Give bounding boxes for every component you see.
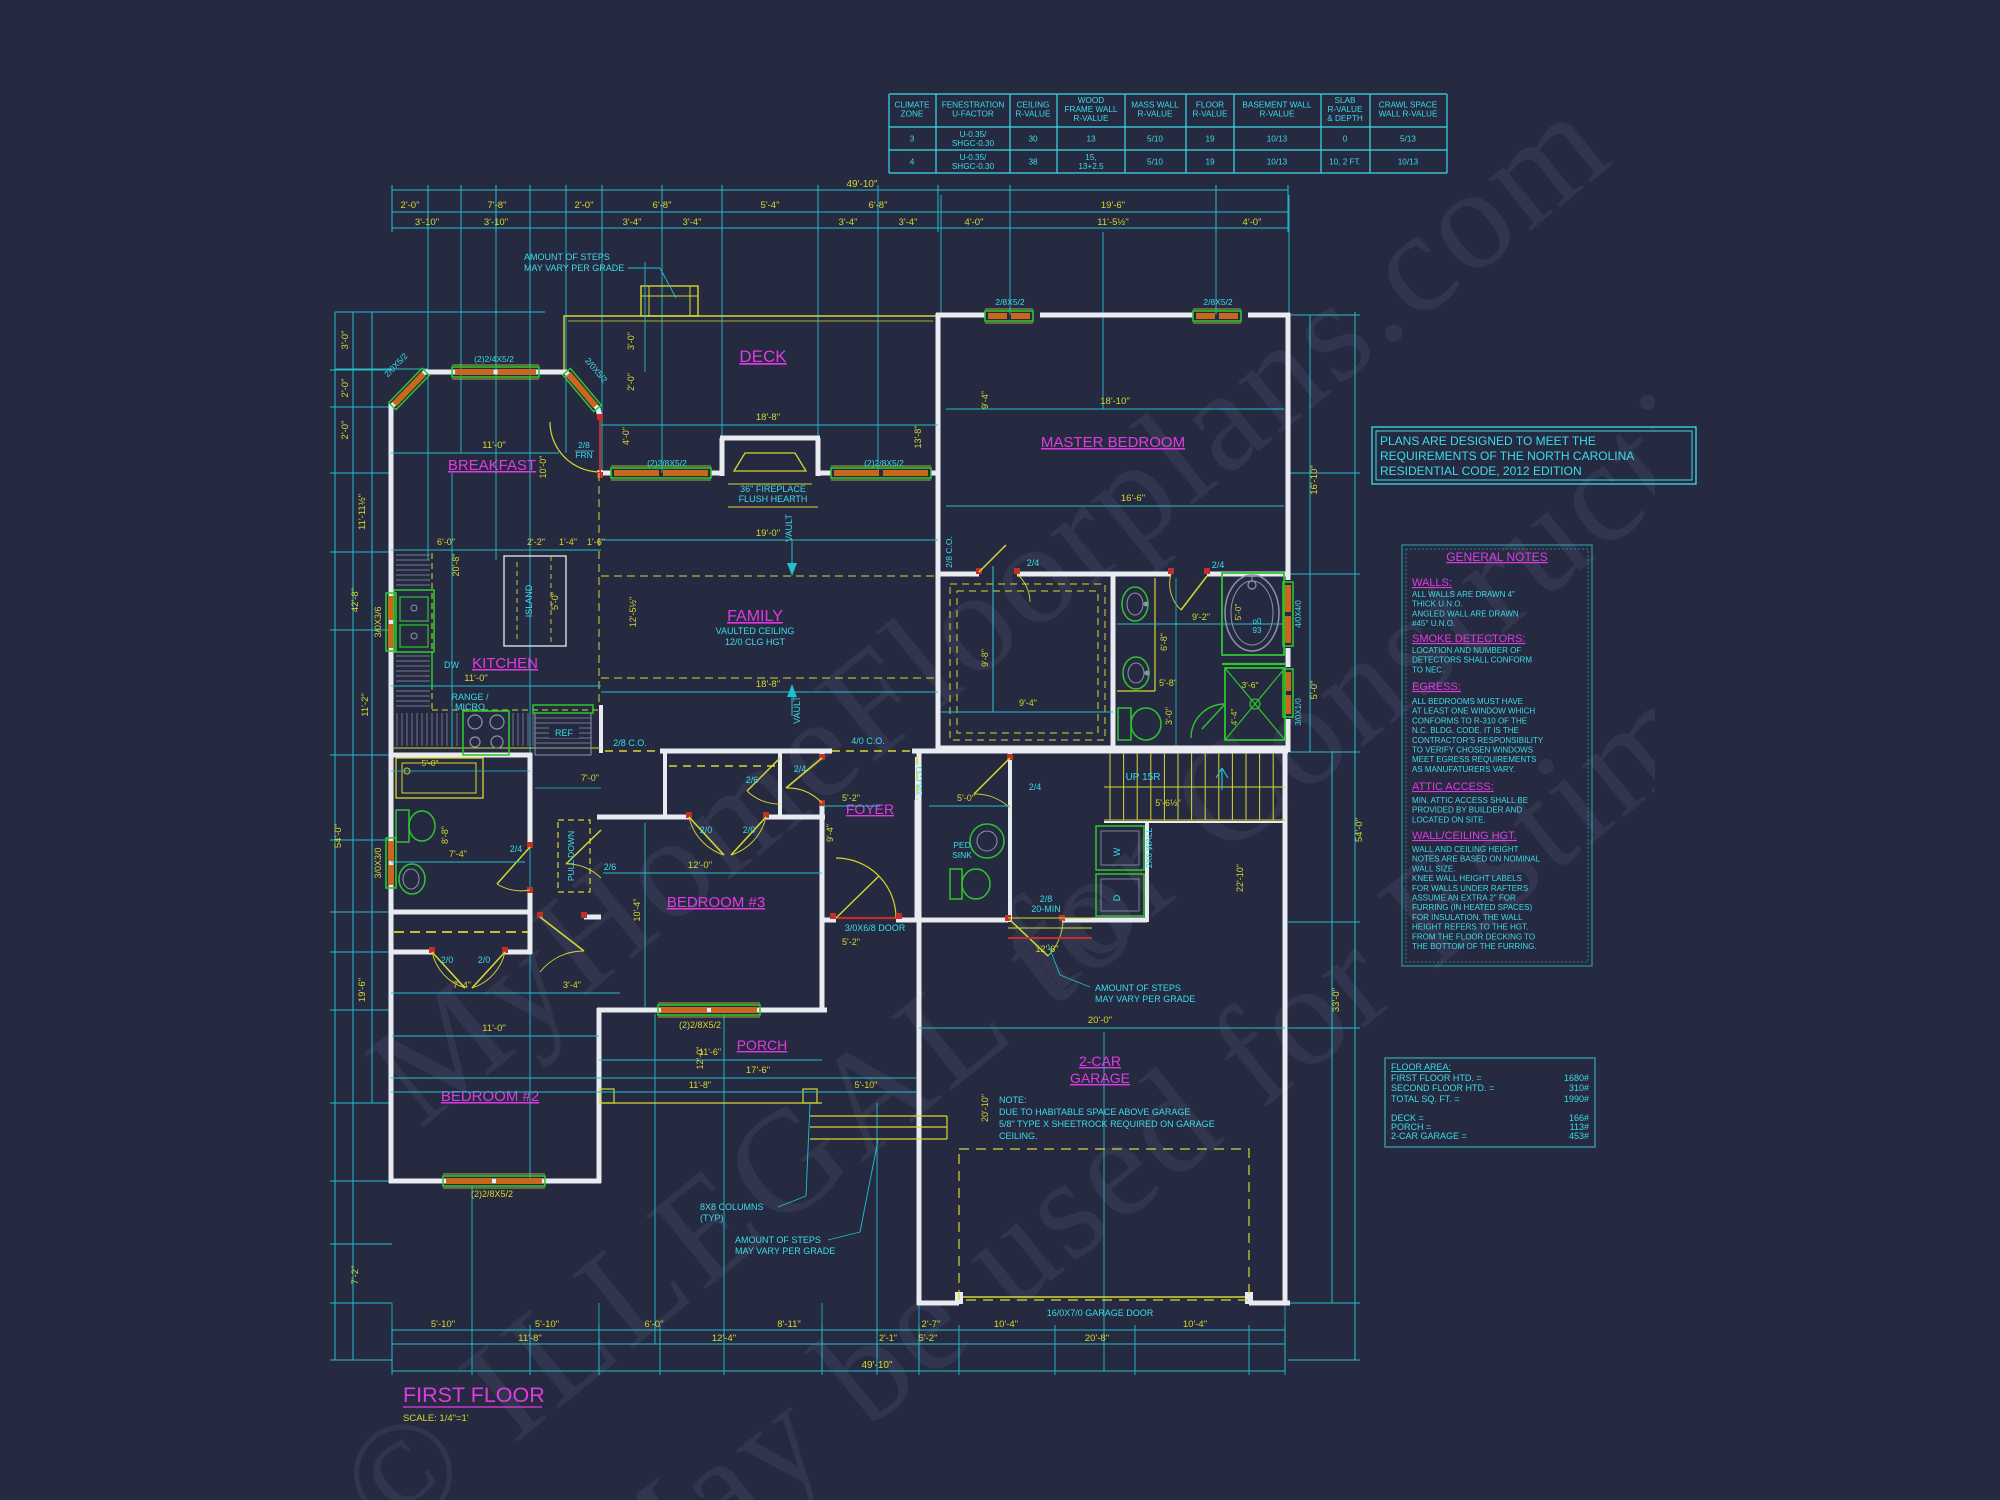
svg-text:8'-11": 8'-11": [777, 1319, 801, 1330]
svg-text:3/0X3/0: 3/0X3/0: [373, 847, 383, 878]
svg-text:W: W: [1112, 847, 1122, 856]
svg-text:11'-0": 11'-0": [482, 440, 506, 451]
svg-text:R-VALUE: R-VALUE: [1138, 110, 1173, 119]
svg-text:13'-8": 13'-8": [913, 426, 923, 449]
svg-text:MASTER BEDROOM: MASTER BEDROOM: [1041, 434, 1185, 451]
svg-text:SCALE: 1/4"=1': SCALE: 1/4"=1': [403, 1413, 469, 1424]
svg-text:FIRST FLOOR HTD. =: FIRST FLOOR HTD. =: [1391, 1073, 1482, 1083]
svg-text:SLAB: SLAB: [1335, 96, 1356, 105]
svg-text:10'-4": 10'-4": [1183, 1319, 1207, 1330]
svg-text:2'-0": 2'-0": [575, 200, 594, 211]
svg-text:KNEE WALL HEIGHT LABELS: KNEE WALL HEIGHT LABELS: [1412, 874, 1522, 883]
svg-text:9'-4": 9'-4": [825, 824, 835, 842]
svg-text:11'-5½": 11'-5½": [1097, 217, 1128, 228]
svg-text:11'-8": 11'-8": [689, 1080, 711, 1090]
svg-text:CONTRACTOR'S RESPONSIBILITY: CONTRACTOR'S RESPONSIBILITY: [1412, 736, 1544, 745]
svg-text:ISLAND: ISLAND: [524, 584, 534, 617]
svg-text:20'-8": 20'-8": [1085, 1333, 1109, 1344]
svg-text:FIRST FLOOR: FIRST FLOOR: [403, 1383, 545, 1407]
svg-text:20'-10": 20'-10": [980, 1094, 990, 1122]
svg-text:RANGE /: RANGE /: [451, 692, 489, 702]
svg-text:U-0.35/: U-0.35/: [960, 130, 988, 139]
svg-text:NOTE:: NOTE:: [999, 1095, 1027, 1105]
svg-text:12'-5½": 12'-5½": [628, 597, 638, 627]
svg-text:49'-10": 49'-10": [846, 179, 877, 190]
svg-text:FLUSH HEARTH: FLUSH HEARTH: [739, 494, 808, 504]
svg-text:7'-8": 7'-8": [488, 200, 507, 211]
svg-text:PULL DOWN: PULL DOWN: [566, 831, 576, 881]
svg-text:R-VALUE: R-VALUE: [1328, 105, 1363, 114]
svg-text:6'-8": 6'-8": [653, 200, 672, 211]
svg-text:MAY VARY PER GRADE: MAY VARY PER GRADE: [1095, 994, 1195, 1004]
svg-text:(2)2/8X5/2: (2)2/8X5/2: [471, 1189, 513, 1199]
svg-text:5/8" TYPE X SHEETROCK REQUIRED: 5/8" TYPE X SHEETROCK REQUIRED ON GARAGE: [999, 1119, 1215, 1129]
svg-text:6'-8": 6'-8": [1159, 633, 1169, 651]
svg-text:10'-4": 10'-4": [994, 1319, 1018, 1330]
svg-text:FOR INSULATION. THE WALL: FOR INSULATION. THE WALL: [1412, 913, 1523, 922]
svg-text:12'-4": 12'-4": [712, 1333, 736, 1344]
svg-text:33'-0": 33'-0": [1331, 988, 1342, 1012]
svg-text:2/4: 2/4: [510, 844, 523, 854]
svg-text:16'-6": 16'-6": [1121, 493, 1145, 504]
svg-text:SINK: SINK: [952, 850, 972, 860]
svg-text:3'-4": 3'-4": [563, 980, 581, 990]
svg-text:AMOUNT OF STEPS: AMOUNT OF STEPS: [1095, 983, 1181, 993]
svg-text:5'-0": 5'-0": [422, 758, 439, 768]
svg-text:4'-0": 4'-0": [621, 427, 631, 445]
svg-text:2/8 C.O.: 2/8 C.O.: [613, 738, 647, 748]
svg-text:SHGC-0.30: SHGC-0.30: [952, 162, 995, 171]
svg-text:1990#: 1990#: [1564, 1094, 1589, 1104]
svg-text:AS MANUFATURERS VARY.: AS MANUFATURERS VARY.: [1412, 765, 1515, 774]
svg-text:NOTES ARE BASED ON NOMINAL: NOTES ARE BASED ON NOMINAL: [1412, 855, 1541, 864]
svg-text:2'-2": 2'-2": [527, 537, 545, 547]
svg-text:ANGLED WALL ARE DRAWN: ANGLED WALL ARE DRAWN: [1412, 609, 1519, 618]
svg-text:5/10: 5/10: [1147, 135, 1163, 144]
svg-text:2'-0": 2'-0": [401, 200, 420, 211]
svg-text:ZONE: ZONE: [901, 110, 924, 119]
svg-text:THE BOTTOM OF THE FURRING.: THE BOTTOM OF THE FURRING.: [1412, 942, 1537, 951]
svg-text:2/4: 2/4: [1027, 558, 1040, 568]
svg-text:#45° U.N.O.: #45° U.N.O.: [1412, 619, 1455, 628]
svg-text:2/4: 2/4: [794, 764, 807, 774]
svg-text:FLOOR AREA:: FLOOR AREA:: [1391, 1062, 1451, 1072]
svg-text:3/0X3/6: 3/0X3/6: [373, 606, 383, 637]
svg-text:2/8: 2/8: [1040, 894, 1053, 904]
svg-text:TO VERIFY CHOSEN WINDOWS: TO VERIFY CHOSEN WINDOWS: [1412, 746, 1533, 755]
svg-text:(2)2/8X5/2: (2)2/8X5/2: [679, 1020, 721, 1030]
svg-text:GENERAL NOTES: GENERAL NOTES: [1446, 550, 1548, 564]
svg-text:VAULT: VAULT: [792, 696, 802, 724]
svg-text:(2)2/8X5/2: (2)2/8X5/2: [647, 458, 687, 468]
svg-text:SMOKE DETECTORS:: SMOKE DETECTORS:: [1412, 633, 1525, 645]
svg-text:9'-2": 9'-2": [1192, 612, 1210, 622]
svg-text:11'-8": 11'-8": [518, 1333, 542, 1344]
svg-text:2/6: 2/6: [604, 862, 617, 872]
svg-text:FLOOR: FLOOR: [1196, 101, 1224, 110]
svg-text:7'-0": 7'-0": [581, 773, 599, 783]
svg-text:19'-0": 19'-0": [756, 528, 780, 539]
svg-text:GARAGE: GARAGE: [1070, 1070, 1130, 1086]
svg-text:3'-0": 3'-0": [340, 331, 351, 350]
svg-text:10, 2 FT.: 10, 2 FT.: [1329, 158, 1361, 167]
svg-text:PED: PED: [953, 840, 970, 850]
svg-text:PLANS ARE DESIGNED TO MEET THE: PLANS ARE DESIGNED TO MEET THE: [1380, 434, 1596, 448]
svg-text:7'-4": 7'-4": [453, 980, 471, 990]
svg-text:MIN. ATTIC ACCESS SHALL BE: MIN. ATTIC ACCESS SHALL BE: [1412, 796, 1528, 805]
svg-text:(2)2/4X5/2: (2)2/4X5/2: [474, 354, 514, 364]
svg-text:6'-0": 6'-0": [645, 1319, 664, 1330]
svg-text:3'-4": 3'-4": [623, 217, 642, 228]
svg-text:& DEPTH: & DEPTH: [1327, 114, 1363, 123]
svg-text:FOYER: FOYER: [846, 801, 894, 817]
svg-text:12'-6": 12'-6": [1036, 944, 1059, 954]
svg-text:1'-4": 1'-4": [559, 537, 577, 547]
svg-text:0: 0: [1343, 135, 1348, 144]
svg-text:17'-6": 17'-6": [746, 1065, 770, 1076]
svg-text:5'-2": 5'-2": [919, 1333, 938, 1344]
svg-text:FROM THE FLOOR DECKING TO: FROM THE FLOOR DECKING TO: [1412, 932, 1535, 941]
svg-text:2/8X5/2: 2/8X5/2: [1203, 297, 1233, 307]
svg-text:3'-4": 3'-4": [683, 217, 702, 228]
svg-text:453#: 453#: [1569, 1131, 1589, 1141]
svg-text:5'-8": 5'-8": [1159, 678, 1177, 688]
svg-text:22'-10": 22'-10": [1235, 864, 1245, 892]
svg-text:13+2.5: 13+2.5: [1078, 162, 1104, 171]
svg-text:42'-8": 42'-8": [350, 588, 361, 612]
svg-text:3'-0": 3'-0": [626, 332, 636, 350]
svg-text:R-VALUE: R-VALUE: [1193, 110, 1228, 119]
svg-text:10/13: 10/13: [1398, 158, 1419, 167]
svg-text:CONFORMS TO R-310 OF THE: CONFORMS TO R-310 OF THE: [1412, 716, 1527, 725]
svg-text:FOR WALLS UNDER RAFTERS: FOR WALLS UNDER RAFTERS: [1412, 884, 1528, 893]
svg-text:BREAKFAST: BREAKFAST: [448, 457, 536, 474]
svg-text:19'-6": 19'-6": [357, 978, 368, 1002]
svg-text:4: 4: [910, 158, 915, 167]
svg-text:2/0: 2/0: [478, 955, 491, 965]
svg-text:2'-0": 2'-0": [340, 379, 351, 398]
svg-text:3'-4": 3'-4": [899, 217, 918, 228]
svg-text:18'-8": 18'-8": [756, 412, 780, 423]
svg-text:HEIGHT REFERS TO THE HGT.: HEIGHT REFERS TO THE HGT.: [1412, 923, 1528, 932]
svg-text:2'-0": 2'-0": [626, 373, 636, 391]
svg-text:CEILING.: CEILING.: [999, 1131, 1038, 1141]
svg-text:LOCATED ON SITE.: LOCATED ON SITE.: [1412, 815, 1486, 824]
svg-text:11'-0": 11'-0": [464, 673, 488, 684]
svg-text:3/0X1/0: 3/0X1/0: [1294, 698, 1303, 726]
svg-text:2/0: 2/0: [441, 955, 454, 965]
svg-text:310#: 310#: [1569, 1083, 1589, 1093]
svg-text:2'-7": 2'-7": [922, 1319, 941, 1330]
svg-text:2-CAR GARAGE =: 2-CAR GARAGE =: [1391, 1131, 1467, 1141]
svg-text:REF: REF: [555, 728, 574, 738]
svg-text:7'-2": 7'-2": [350, 1266, 361, 1285]
svg-text:WALL SIZE.: WALL SIZE.: [1412, 864, 1455, 873]
svg-text:3'-10": 3'-10": [415, 217, 439, 228]
svg-text:CEILING: CEILING: [1017, 101, 1050, 110]
svg-text:10'-4": 10'-4": [632, 899, 642, 922]
svg-text:11'-2": 11'-2": [360, 693, 371, 717]
svg-text:D: D: [1112, 894, 1122, 901]
svg-text:6'-8": 6'-8": [869, 200, 888, 211]
svg-text:54'-0": 54'-0": [1354, 818, 1365, 842]
svg-text:5/10: 5/10: [1147, 158, 1163, 167]
svg-text:5/13: 5/13: [1400, 135, 1416, 144]
svg-text:3'-10": 3'-10": [484, 217, 508, 228]
svg-text:20'-0": 20'-0": [1088, 1015, 1112, 1026]
svg-text:KITCHEN: KITCHEN: [472, 655, 538, 672]
svg-text:DUE TO HABITABLE SPACE ABOVE G: DUE TO HABITABLE SPACE ABOVE GARAGE: [999, 1107, 1190, 1117]
svg-text:5'-10": 5'-10": [535, 1319, 559, 1330]
svg-text:16/0X7/0 GARAGE DOOR: 16/0X7/0 GARAGE DOOR: [1047, 1308, 1154, 1318]
svg-text:PROVIDED BY BUILDER AND: PROVIDED BY BUILDER AND: [1412, 806, 1522, 815]
svg-text:4/0X4/0: 4/0X4/0: [1294, 600, 1303, 628]
svg-text:MAY VARY PER GRADE: MAY VARY PER GRADE: [524, 263, 624, 273]
svg-text:U-0.35/: U-0.35/: [960, 153, 988, 162]
svg-text:18'-8": 18'-8": [756, 679, 780, 690]
svg-text:2X6 WALL: 2X6 WALL: [1144, 828, 1154, 869]
svg-text:VAULT: VAULT: [784, 514, 794, 542]
svg-text:15,: 15,: [1085, 153, 1096, 162]
svg-text:WALL AND CEILING HEIGHT: WALL AND CEILING HEIGHT: [1412, 845, 1519, 854]
svg-text:R-VALUE: R-VALUE: [1016, 110, 1051, 119]
svg-text:TO NEC.: TO NEC.: [1412, 665, 1444, 674]
svg-text:5'-0": 5'-0": [1233, 604, 1243, 621]
svg-text:CLIMATE: CLIMATE: [895, 101, 930, 110]
svg-text:10'-0": 10'-0": [538, 456, 548, 479]
svg-text:19: 19: [1205, 135, 1215, 144]
svg-text:AMOUNT OF STEPS: AMOUNT OF STEPS: [524, 252, 610, 262]
svg-text:FRN: FRN: [575, 450, 592, 460]
svg-text:AT LEAST ONE WINDOW WHICH: AT LEAST ONE WINDOW WHICH: [1412, 707, 1535, 716]
svg-text:2/8 C.O.: 2/8 C.O.: [914, 764, 924, 796]
svg-text:93: 93: [1253, 626, 1262, 635]
svg-text:2'-0": 2'-0": [340, 421, 351, 440]
svg-text:TOTAL SQ. FT. =: TOTAL SQ. FT. =: [1391, 1094, 1460, 1104]
svg-text:3'-4": 3'-4": [839, 217, 858, 228]
svg-text:R-VALUE: R-VALUE: [1074, 114, 1109, 123]
svg-text:11'-11½": 11'-11½": [357, 494, 368, 530]
svg-text:5'-4": 5'-4": [761, 200, 780, 211]
svg-text:AMOUNT OF STEPS: AMOUNT OF STEPS: [735, 1235, 821, 1245]
svg-text:20'-8": 20'-8": [451, 554, 461, 577]
svg-text:BEDROOM #2: BEDROOM #2: [441, 1088, 539, 1105]
svg-text:9'-4": 9'-4": [1019, 698, 1037, 708]
svg-text:THICK U.N.O.: THICK U.N.O.: [1412, 600, 1463, 609]
svg-text:N.C. BLDG. CODE. IT IS THE: N.C. BLDG. CODE. IT IS THE: [1412, 726, 1519, 735]
svg-text:R-VALUE: R-VALUE: [1260, 110, 1295, 119]
svg-text:2'-1": 2'-1": [879, 1333, 897, 1343]
svg-text:MAY VARY PER GRADE: MAY VARY PER GRADE: [735, 1246, 835, 1256]
svg-text:SHGC-0.30: SHGC-0.30: [952, 139, 995, 148]
svg-text:10/13: 10/13: [1267, 158, 1288, 167]
svg-text:ALL WALLS ARE DRAWN 4": ALL WALLS ARE DRAWN 4": [1412, 590, 1515, 599]
svg-text:3/0X6/8 DOOR: 3/0X6/8 DOOR: [845, 923, 906, 933]
svg-text:19'-6": 19'-6": [1101, 200, 1125, 211]
svg-text:BEDROOM #3: BEDROOM #3: [667, 894, 765, 911]
svg-text:WALL/CEILING HGT.: WALL/CEILING HGT.: [1412, 830, 1517, 842]
svg-text:3: 3: [910, 135, 915, 144]
svg-text:ALL BEDROOMS MUST HAVE: ALL BEDROOMS MUST HAVE: [1412, 697, 1523, 706]
svg-text:LOCATION AND NUMBER OF: LOCATION AND NUMBER OF: [1412, 646, 1521, 655]
svg-text:5'-0": 5'-0": [957, 793, 975, 803]
svg-text:7'-4": 7'-4": [449, 849, 467, 859]
svg-text:ATTIC ACCESS:: ATTIC ACCESS:: [1412, 781, 1494, 793]
svg-text:PORCH: PORCH: [737, 1037, 788, 1053]
svg-text:36" FIREPLACE: 36" FIREPLACE: [740, 484, 806, 494]
svg-text:o0: o0: [1253, 617, 1262, 626]
svg-text:5'-10": 5'-10": [431, 1319, 455, 1330]
svg-text:12'-0": 12'-0": [695, 1047, 705, 1070]
svg-text:MICRO: MICRO: [455, 702, 485, 712]
svg-text:2/0: 2/0: [743, 825, 756, 835]
svg-text:FENESTRATION: FENESTRATION: [942, 101, 1005, 110]
svg-text:(TYP): (TYP): [700, 1213, 724, 1223]
svg-text:VAULTED CEILING: VAULTED CEILING: [716, 626, 795, 636]
svg-text:U-FACTOR: U-FACTOR: [952, 110, 994, 119]
svg-text:MEET EGRESS REQUIREMENTS: MEET EGRESS REQUIREMENTS: [1412, 755, 1536, 764]
svg-text:WOOD: WOOD: [1078, 96, 1104, 105]
svg-text:1680#: 1680#: [1564, 1073, 1589, 1083]
svg-text:8'-8": 8'-8": [440, 826, 450, 844]
svg-text:2/8 C.O.: 2/8 C.O.: [944, 536, 954, 568]
svg-text:2/8X5/2: 2/8X5/2: [995, 297, 1025, 307]
svg-text:5'-0": 5'-0": [550, 592, 560, 610]
svg-text:DECK: DECK: [739, 347, 787, 366]
svg-text:1'-6": 1'-6": [587, 537, 605, 547]
svg-text:FRAME WALL: FRAME WALL: [1065, 105, 1118, 114]
svg-text:4'-4": 4'-4": [1229, 709, 1239, 726]
svg-text:16'-10": 16'-10": [1309, 465, 1320, 494]
svg-text:18'-10": 18'-10": [1100, 396, 1129, 407]
svg-text:RESIDENTIAL CODE, 2012 EDITION: RESIDENTIAL CODE, 2012 EDITION: [1380, 464, 1582, 478]
svg-text:2/6: 2/6: [746, 775, 759, 785]
svg-text:20-MIN: 20-MIN: [1031, 904, 1061, 914]
svg-text:3'-0": 3'-0": [1164, 707, 1174, 725]
svg-text:EGRESS:: EGRESS:: [1412, 681, 1461, 693]
svg-text:SECOND FLOOR HTD. =: SECOND FLOOR HTD. =: [1391, 1083, 1494, 1093]
svg-text:4/0 C.O.: 4/0 C.O.: [851, 736, 885, 746]
svg-text:3'-6": 3'-6": [1242, 680, 1259, 690]
svg-text:ASSUME AN EXTRA 2" FOR: ASSUME AN EXTRA 2" FOR: [1412, 894, 1516, 903]
svg-text:4'-0": 4'-0": [965, 217, 984, 228]
svg-text:8X8 COLUMNS: 8X8 COLUMNS: [700, 1202, 764, 1212]
svg-text:REQUIREMENTS OF THE NORTH CARO: REQUIREMENTS OF THE NORTH CAROLINA: [1380, 449, 1634, 463]
svg-text:FURRING (IN HEATED SPACES): FURRING (IN HEATED SPACES): [1412, 903, 1532, 912]
svg-text:MASS WALL: MASS WALL: [1131, 101, 1179, 110]
svg-text:10/13: 10/13: [1267, 135, 1288, 144]
svg-text:19: 19: [1205, 158, 1215, 167]
svg-text:12'-0": 12'-0": [688, 860, 712, 871]
svg-text:2/8: 2/8: [578, 440, 590, 450]
svg-text:FAMILY: FAMILY: [727, 608, 783, 625]
svg-text:DETECTORS SHALL CONFORM: DETECTORS SHALL CONFORM: [1412, 656, 1532, 665]
svg-text:5'-2": 5'-2": [842, 793, 860, 803]
svg-text:(2)2/8X5/2: (2)2/8X5/2: [864, 458, 904, 468]
svg-text:2-CAR: 2-CAR: [1079, 1053, 1121, 1069]
svg-text:9'-4": 9'-4": [980, 391, 990, 409]
svg-text:9'-8": 9'-8": [980, 649, 990, 667]
svg-text:38: 38: [1028, 158, 1038, 167]
svg-text:2/4: 2/4: [1029, 782, 1042, 792]
svg-text:WALL R-VALUE: WALL R-VALUE: [1379, 110, 1438, 119]
svg-text:2/0: 2/0: [700, 825, 713, 835]
svg-text:5'-6½": 5'-6½": [1155, 798, 1180, 808]
svg-text:12/0 CLG HGT: 12/0 CLG HGT: [725, 637, 786, 647]
svg-text:WALLS:: WALLS:: [1412, 577, 1452, 589]
svg-text:2/4: 2/4: [1212, 560, 1225, 570]
svg-text:CRAWL SPACE: CRAWL SPACE: [1379, 101, 1438, 110]
svg-text:5'-0": 5'-0": [1309, 681, 1320, 700]
svg-text:4'-0": 4'-0": [1243, 217, 1262, 228]
svg-text:5'-2": 5'-2": [842, 937, 860, 947]
svg-text:54'-0": 54'-0": [333, 824, 344, 848]
svg-text:BASEMENT WALL: BASEMENT WALL: [1242, 101, 1312, 110]
svg-text:11'-0": 11'-0": [482, 1023, 506, 1034]
svg-text:5'-10": 5'-10": [855, 1080, 878, 1090]
svg-text:49'-10": 49'-10": [861, 1360, 892, 1371]
svg-text:30: 30: [1028, 135, 1038, 144]
svg-text:13: 13: [1086, 135, 1096, 144]
svg-text:UP 15R: UP 15R: [1126, 772, 1161, 783]
